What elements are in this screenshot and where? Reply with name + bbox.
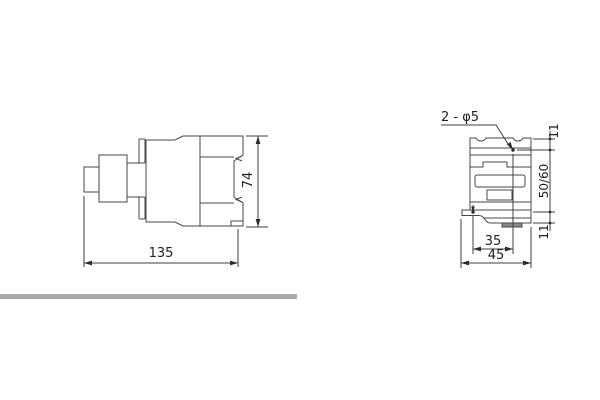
technical-drawing-page: 135 74: [0, 0, 600, 400]
holes-callout-leader-line: [441, 125, 510, 147]
side-view-height-dim-label: 74: [241, 172, 256, 189]
side-view-bottom-tab: [139, 197, 145, 219]
dimension-74-bottom-arrow: [256, 219, 261, 227]
dimension-45-right-arrow: [523, 261, 531, 266]
front-view-small-label: [487, 190, 512, 200]
side-view-front-block: [99, 155, 127, 202]
dimension-35-left-arrow: [473, 247, 481, 252]
front-view-rail-span-label: 50/60: [537, 164, 551, 199]
front-view-nameplate: [475, 175, 525, 187]
dimension-135: 135: [84, 196, 238, 267]
side-view-width-dim-label: 135: [149, 246, 174, 261]
dimension-drawing-canvas: 135 74: [0, 0, 600, 400]
dimension-135-left-arrow: [84, 261, 92, 266]
front-view-top-offset-label: 11: [547, 123, 561, 138]
holes-callout: 2 - φ5: [441, 110, 513, 150]
front-view-top-tab: [470, 162, 531, 167]
front-view-holes-label: 2 - φ5: [441, 110, 479, 125]
dimension-135-right-arrow: [230, 261, 238, 266]
bottom-divider-bar: [0, 294, 297, 299]
dimension-chain-right: 11 50/60 11: [517, 123, 561, 239]
chain-point-hole-top: [549, 149, 552, 152]
dimension-35-right-arrow: [505, 247, 513, 252]
front-view-hole-spacing-label: 35: [485, 234, 502, 249]
side-view-rail-channel-lines: [200, 157, 234, 203]
side-view-rail-foot: [231, 221, 243, 226]
front-view-bottom-offset-label: 11: [537, 224, 551, 239]
front-view: 2 - φ5 11 50/60 11: [441, 110, 561, 268]
side-view-neck: [127, 163, 139, 197]
dimension-45-left-arrow: [461, 261, 469, 266]
side-view: 135 74: [84, 136, 268, 267]
front-view-section-lines: [470, 148, 531, 218]
chain-point-bottom: [549, 222, 552, 225]
dimension-35: 35: [473, 154, 513, 254]
side-view-knob: [84, 167, 99, 192]
front-view-din-clip: [502, 223, 522, 227]
dimension-74: 74: [241, 136, 268, 227]
front-view-width-dim-label: 45: [488, 248, 505, 263]
side-view-top-tab: [139, 139, 145, 163]
chain-point-hole-bottom: [549, 211, 552, 214]
side-view-body-outline: [146, 136, 243, 226]
dimension-74-top-arrow: [256, 136, 261, 144]
